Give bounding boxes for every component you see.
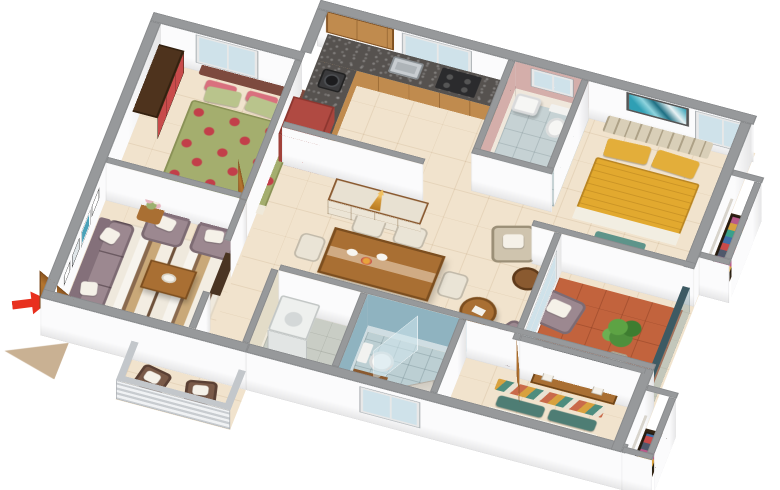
floor-plan-render <box>0 0 780 490</box>
apartment-plan <box>11 0 780 490</box>
living-wall-frame <box>92 187 100 217</box>
living-wall-frame <box>64 261 70 287</box>
bedroom2-armchair-pillow <box>503 234 524 248</box>
armchair-pillow <box>204 229 225 244</box>
sofa-pillow <box>80 281 99 296</box>
living-wall-frame <box>72 237 80 268</box>
wall-face-wardrobe2-south <box>699 257 729 303</box>
